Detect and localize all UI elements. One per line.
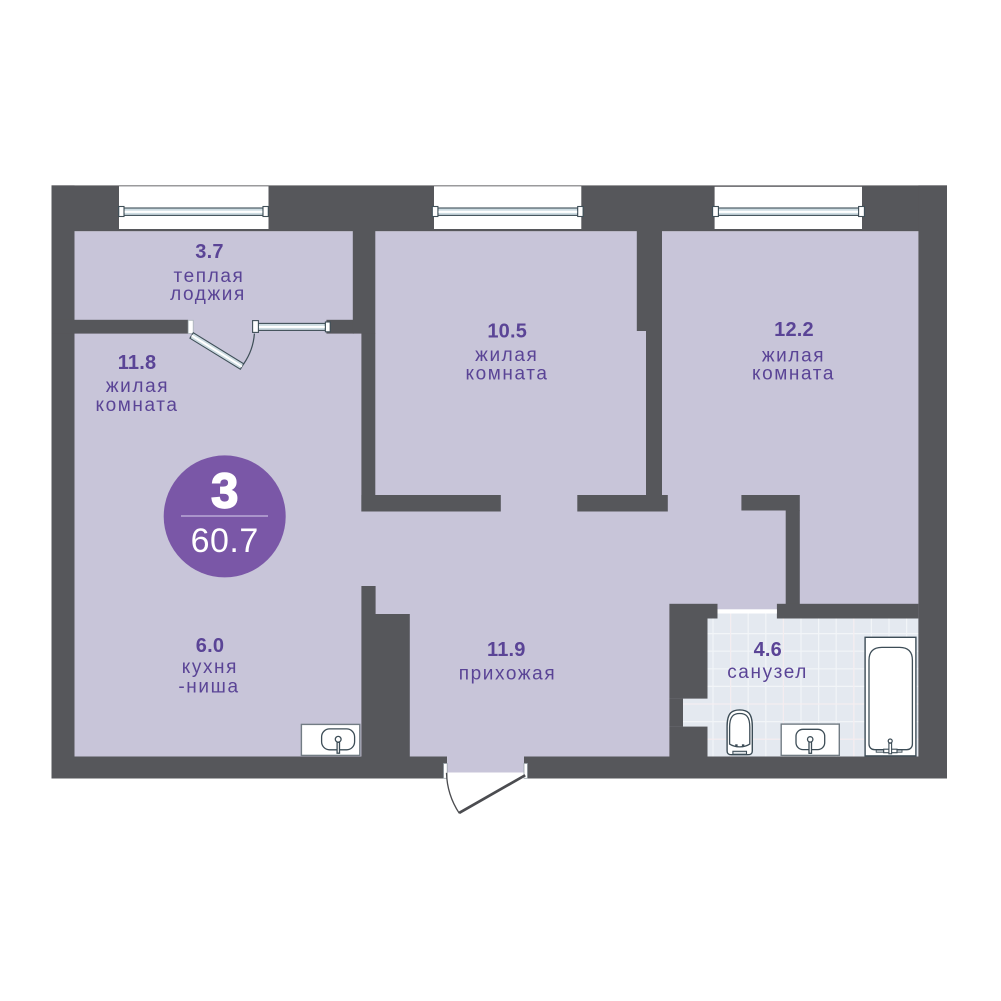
svg-text:10.5: 10.5 bbox=[487, 320, 527, 342]
svg-text:санузел: санузел bbox=[727, 662, 808, 683]
svg-text:3: 3 bbox=[211, 464, 238, 518]
svg-text:12.2: 12.2 bbox=[774, 319, 814, 341]
svg-text:прихожая: прихожая bbox=[459, 663, 556, 684]
svg-text:3.7: 3.7 bbox=[195, 241, 223, 263]
svg-text:комната: комната bbox=[465, 363, 548, 384]
svg-text:комната: комната bbox=[752, 364, 835, 385]
svg-text:4.6: 4.6 bbox=[754, 639, 782, 661]
svg-text:-ниша: -ниша bbox=[178, 677, 239, 698]
svg-text:6.0: 6.0 bbox=[196, 635, 224, 657]
svg-text:жилая: жилая bbox=[106, 376, 169, 397]
svg-text:11.8: 11.8 bbox=[118, 352, 157, 374]
svg-text:60.7: 60.7 bbox=[191, 522, 259, 560]
svg-text:11.9: 11.9 bbox=[487, 639, 526, 661]
svg-text:комната: комната bbox=[95, 395, 178, 416]
svg-text:кухня: кухня bbox=[182, 657, 238, 678]
svg-text:лоджия: лоджия bbox=[170, 284, 246, 305]
